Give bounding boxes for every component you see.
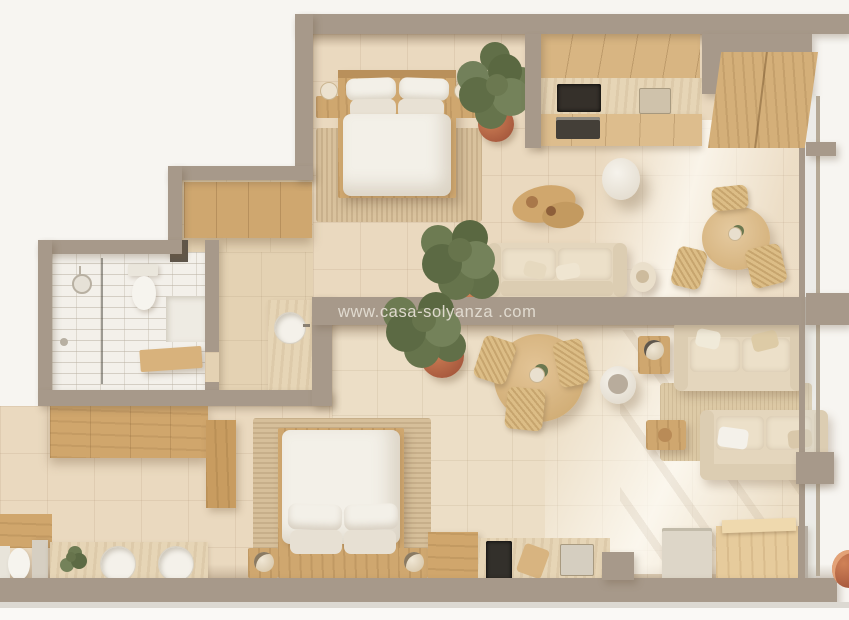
window-frame-inner bbox=[799, 94, 805, 578]
wall-step-1 bbox=[168, 166, 313, 180]
sofa-a-backrest bbox=[501, 281, 613, 296]
sofa-a-arm-left bbox=[487, 243, 501, 297]
window-mullion-1 bbox=[806, 142, 836, 156]
bottom-light-strip bbox=[0, 608, 849, 620]
bed-b-pillow-4 bbox=[344, 530, 396, 554]
shower-head-a bbox=[72, 274, 92, 294]
window-band-junction bbox=[806, 293, 849, 325]
dining-chair-a-1 bbox=[711, 184, 749, 212]
dining-table-b-vase bbox=[530, 368, 544, 382]
wall-kitchen-divider-a bbox=[525, 34, 541, 148]
shower-glass-a bbox=[101, 258, 103, 384]
tall-cabinet-b bbox=[206, 420, 236, 508]
shower-valve-a bbox=[60, 338, 68, 346]
lamp-a-left bbox=[320, 82, 338, 100]
coffee-table-a-bowl-1 bbox=[526, 196, 538, 208]
wall-left-upper bbox=[295, 14, 313, 180]
wall-step-2 bbox=[38, 240, 182, 254]
bed-a-pillow-2 bbox=[399, 77, 450, 101]
sphere-lamp-b-right bbox=[404, 552, 424, 572]
kitchen-a-upper-cabinets bbox=[540, 34, 700, 78]
kitchen-b-fridge bbox=[662, 528, 712, 583]
plant-b-pot bbox=[420, 334, 464, 378]
kitchen-b-cabinet-left bbox=[428, 532, 478, 582]
kitchen-b-cooktop bbox=[486, 541, 512, 580]
lamp-a-right bbox=[454, 82, 472, 100]
kitchen-b-sink bbox=[560, 544, 594, 576]
bath-a-bench bbox=[139, 346, 202, 372]
lamp-stool-a-top bbox=[636, 270, 649, 283]
sofa-b-north-arm-left bbox=[674, 321, 688, 391]
toilet-a-tank bbox=[128, 264, 158, 276]
drum-table-b-top bbox=[608, 374, 628, 394]
kitchen-a-sink bbox=[639, 88, 671, 114]
bed-a-pillow-1 bbox=[346, 77, 397, 101]
wall-divider-left bbox=[38, 390, 332, 406]
sofa-b-south-pillow-1 bbox=[717, 426, 749, 450]
plant-a-living-foliage bbox=[448, 238, 472, 262]
bath-a-niche-shelf bbox=[166, 296, 208, 342]
sofa-a-arm-right bbox=[613, 243, 627, 297]
basin-b-1 bbox=[100, 546, 136, 582]
partition-b bbox=[32, 540, 48, 582]
toilet-b-bowl bbox=[8, 548, 30, 580]
watermark-text: www.casa-solyanza .com bbox=[338, 303, 536, 322]
wall-top bbox=[295, 14, 849, 34]
kitchen-b-island-lid bbox=[722, 518, 796, 534]
window-glass-right bbox=[804, 94, 816, 578]
toilet-a-bowl bbox=[132, 276, 156, 310]
window-mullion-2 bbox=[796, 452, 834, 484]
window-frame-outer bbox=[816, 96, 820, 576]
bath-a-door-opening bbox=[205, 352, 219, 382]
bed-b-pillow-2 bbox=[344, 503, 399, 531]
coffee-table-a-bowl-2 bbox=[546, 206, 556, 216]
bed-b-pillow-3 bbox=[290, 530, 342, 554]
wardrobe-entry-a bbox=[184, 182, 312, 238]
dining-chair-b-3 bbox=[504, 386, 546, 432]
basin-a bbox=[274, 312, 306, 344]
sphere-lamp-b-left bbox=[254, 552, 274, 572]
wardrobe-top-right-a bbox=[708, 52, 818, 148]
vanity-b-plant bbox=[66, 552, 76, 562]
bed-a-duvet bbox=[343, 114, 451, 196]
plant-a-bedroom-foliage bbox=[486, 74, 508, 96]
wall-bottom-stub bbox=[602, 552, 634, 580]
wardrobe-b bbox=[50, 404, 208, 458]
kitchen-b-island bbox=[716, 526, 808, 583]
coffee-table-b-tray bbox=[658, 428, 672, 442]
shower-arm-a bbox=[79, 266, 81, 276]
wall-bottom bbox=[0, 578, 837, 604]
wall-left-bath bbox=[38, 240, 52, 392]
sofa-b-south-arm-left bbox=[700, 410, 714, 480]
bed-a-headboard bbox=[338, 70, 456, 78]
kitchen-a-cooktop bbox=[557, 84, 601, 112]
floor-plan-render: www.casa-solyanza .com bbox=[0, 0, 849, 620]
basin-b-2 bbox=[158, 546, 194, 582]
bed-b-pillow-1 bbox=[288, 503, 343, 531]
plant-a-bedroom-pot bbox=[478, 106, 514, 142]
pedestal-table-a bbox=[602, 158, 640, 200]
kitchen-a-oven bbox=[556, 117, 600, 139]
side-table-b-vase bbox=[644, 340, 664, 360]
basin-a-faucet bbox=[303, 324, 310, 327]
dining-table-a-vase bbox=[729, 228, 741, 240]
